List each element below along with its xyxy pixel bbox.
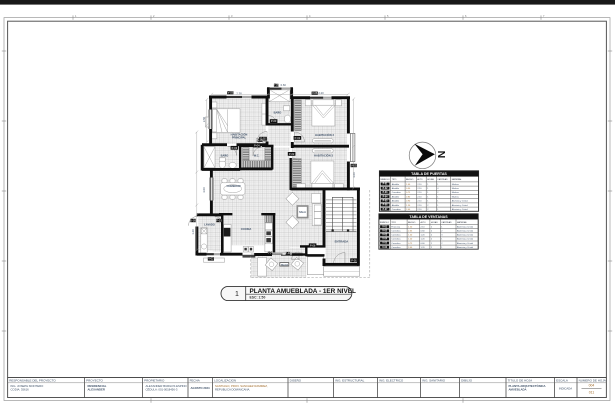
svg-text:Abatible: Abatible (392, 183, 400, 186)
svg-text:ING. ESTRUCTURAL: ING. ESTRUCTURAL (335, 378, 365, 382)
svg-text:V-05: V-05 (190, 218, 196, 222)
svg-text:SIMBOLO: SIMBOLO (380, 179, 390, 181)
svg-text:Abatible: Abatible (392, 200, 400, 203)
svg-text:Abatible: Abatible (392, 204, 400, 207)
svg-text:Madera: Madera (452, 191, 460, 194)
svg-text:TABLA DE PUERTAS: TABLA DE PUERTAS (411, 172, 447, 176)
svg-text:V-04: V-04 (382, 238, 387, 241)
svg-text:004: 004 (589, 384, 595, 388)
svg-text:CODIA: 35616: CODIA: 35616 (11, 388, 30, 392)
svg-text:011: 011 (589, 391, 595, 395)
svg-text:CANTIDAD: CANTIDAD (437, 178, 448, 181)
svg-text:RESPONSABLE DEL PROYECTO: RESPONSABLE DEL PROYECTO (9, 378, 56, 382)
svg-text:ESCALA: ESCALA (556, 378, 568, 382)
svg-text:CÉDULA: 001-0018456-3: CÉDULA: 001-0018456-3 (146, 387, 178, 392)
svg-text:2.20: 2.20 (318, 91, 324, 95)
svg-text:V-02: V-02 (208, 257, 214, 261)
svg-text:ING. ELECTRICO: ING. ELECTRICO (379, 378, 404, 382)
svg-text:FECHA: FECHA (190, 378, 200, 382)
svg-text:2.38: 2.38 (236, 92, 242, 96)
svg-text:P-06: P-06 (310, 243, 316, 247)
svg-text:Corrediza: Corrediza (392, 208, 402, 211)
svg-text:Aluminio y Cristal: Aluminio y Cristal (457, 230, 474, 233)
svg-text:COCINA: COCINA (241, 227, 252, 231)
svg-text:P-03: P-03 (216, 218, 222, 222)
svg-text:PLANTA AMUEBLADA - 1ER NIVEL: PLANTA AMUEBLADA - 1ER NIVEL (250, 288, 356, 295)
svg-text:TIPO: TIPO (392, 179, 397, 181)
svg-text:P-03: P-03 (383, 192, 389, 194)
svg-text:P-07: P-07 (285, 251, 291, 255)
svg-text:Madera: Madera (452, 195, 460, 198)
svg-text:P-04: P-04 (254, 144, 260, 148)
svg-text:Aluminio y Cristal: Aluminio y Cristal (457, 225, 474, 228)
svg-text:COMEDOR: COMEDOR (226, 184, 240, 188)
svg-text:Corrediza: Corrediza (392, 191, 402, 194)
svg-text:P-02: P-02 (383, 188, 389, 190)
svg-text:Aluminio y Cristal: Aluminio y Cristal (452, 200, 469, 203)
svg-text:CANTIDAD: CANTIDAD (441, 221, 452, 224)
svg-text:TABLA DE VENTANAS: TABLA DE VENTANAS (409, 215, 448, 219)
svg-text:Madera: Madera (452, 183, 460, 186)
svg-text:ALEXANDER: ALEXANDER (88, 388, 105, 392)
svg-text:3.00: 3.00 (202, 187, 206, 193)
svg-text:P-07: P-07 (383, 209, 389, 211)
svg-text:Aluminio y Cristal: Aluminio y Cristal (457, 242, 474, 245)
svg-text:Aluminio y Cristal: Aluminio y Cristal (452, 204, 469, 207)
svg-text:P-01: P-01 (351, 258, 357, 262)
svg-text:PROPIETARIO: PROPIETARIO (144, 378, 165, 382)
svg-text:AMUEBLADA: AMUEBLADA (509, 388, 527, 392)
svg-text:LAVADO: LAVADO (204, 223, 215, 227)
svg-text:V-05: V-05 (274, 83, 280, 87)
svg-text:TITULO DE HOJA: TITULO DE HOJA (508, 378, 533, 382)
svg-text:Aluminio y Cristal: Aluminio y Cristal (457, 246, 474, 249)
svg-text:V-04: V-04 (267, 251, 273, 255)
svg-text:SALA: SALA (299, 211, 306, 214)
svg-text:Corrediza: Corrediza (391, 246, 401, 249)
svg-text:P-03: P-03 (232, 146, 238, 150)
svg-text:Abatible: Abatible (392, 187, 400, 190)
svg-text:Francesa: Francesa (391, 225, 401, 228)
svg-text:LOCALIZACION: LOCALIZACION (214, 378, 236, 382)
svg-text:REPUBLICA DOMINICANA.: REPUBLICA DOMINICANA. (215, 388, 250, 392)
svg-text:V-05: V-05 (258, 138, 264, 142)
svg-text:Madera: Madera (452, 187, 460, 190)
svg-text:ANCHO: ANCHO (406, 178, 414, 181)
svg-text:HOJAS: HOJAS (431, 221, 438, 224)
svg-text:3.50: 3.50 (202, 116, 206, 122)
svg-text:P-02: P-02 (295, 136, 301, 140)
svg-text:P-05: P-05 (383, 201, 389, 203)
svg-text:V-01: V-01 (382, 226, 387, 228)
svg-text:P-06: P-06 (383, 205, 389, 207)
svg-text:Corrediza: Corrediza (391, 234, 401, 237)
svg-text:SIMBOLO: SIMBOLO (380, 222, 390, 224)
svg-text:ANCHO: ANCHO (408, 221, 416, 224)
svg-text:V-03: V-03 (382, 235, 387, 237)
svg-text:V-03: V-03 (351, 163, 357, 167)
svg-text:PRINCIPAL: PRINCIPAL (232, 136, 247, 140)
svg-text:W.C.: W.C. (254, 154, 260, 158)
svg-text:Corrediza: Corrediza (391, 230, 401, 233)
svg-text:Corrediza: Corrediza (391, 238, 401, 241)
svg-text:ENTRADA: ENTRADA (335, 240, 349, 244)
svg-text:ING. SANITARIO: ING. SANITARIO (422, 378, 446, 382)
svg-text:N: N (435, 151, 447, 159)
svg-text:V-03: V-03 (228, 91, 234, 95)
svg-text:P-01: P-01 (383, 184, 389, 186)
svg-text:ALTO: ALTO (417, 178, 422, 181)
svg-text:P-02: P-02 (289, 152, 295, 156)
svg-text:V-05: V-05 (382, 243, 387, 245)
svg-text:V-06: V-06 (382, 247, 387, 249)
svg-text:HOJAS: HOJAS (427, 178, 434, 181)
svg-text:1: 1 (235, 291, 239, 298)
svg-text:Abatible: Abatible (392, 195, 400, 198)
svg-text:TIPO: TIPO (391, 222, 396, 224)
svg-text:MATERIAL: MATERIAL (452, 178, 463, 181)
svg-text:Aluminio y Cristal: Aluminio y Cristal (452, 208, 469, 211)
svg-text:AGOSTO 2024: AGOSTO 2024 (191, 386, 211, 390)
svg-text:SALIDA: SALIDA (281, 263, 289, 266)
svg-text:MATERIAL: MATERIAL (457, 221, 468, 224)
svg-text:Corrediza: Corrediza (391, 242, 401, 245)
svg-text:0.60: 0.60 (281, 83, 287, 87)
svg-text:V-02: V-02 (382, 230, 387, 232)
svg-text:NUMERO DE HOJA: NUMERO DE HOJA (579, 378, 606, 382)
svg-text:P-03: P-03 (271, 119, 277, 123)
svg-text:Aluminio y Cristal: Aluminio y Cristal (457, 234, 474, 237)
svg-text:Aluminio y Cristal: Aluminio y Cristal (457, 238, 474, 241)
svg-text:DISEÑO: DISEÑO (290, 377, 302, 382)
svg-text:PROYECTO: PROYECTO (86, 378, 103, 382)
svg-text:P-04: P-04 (383, 195, 389, 198)
svg-text:DIBUJO: DIBUJO (461, 378, 473, 382)
svg-text:ESC: 1:50: ESC: 1:50 (250, 295, 266, 299)
svg-text:INDICADA: INDICADA (559, 387, 572, 391)
svg-text:1.20: 1.20 (191, 229, 195, 235)
svg-text:ALTO: ALTO (421, 221, 426, 224)
